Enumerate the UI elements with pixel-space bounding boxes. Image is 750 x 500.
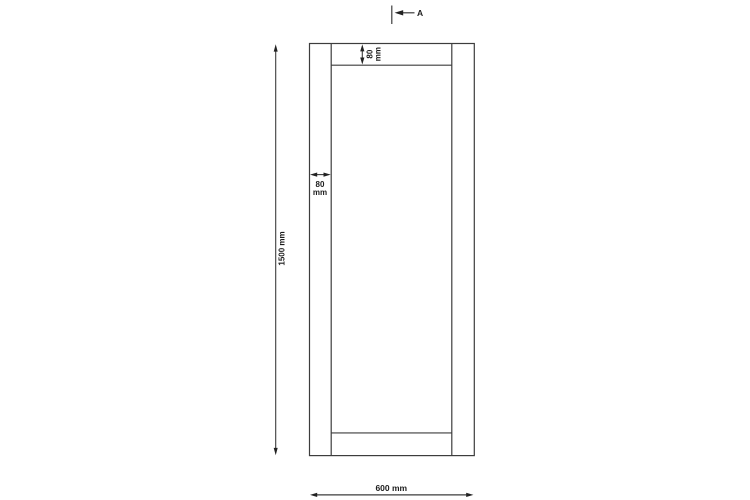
svg-text:mm: mm	[374, 47, 383, 61]
svg-text:600 mm: 600 mm	[375, 483, 407, 493]
svg-text:mm: mm	[313, 188, 327, 197]
svg-text:A: A	[417, 8, 423, 18]
svg-text:1500 mm: 1500 mm	[278, 231, 287, 265]
